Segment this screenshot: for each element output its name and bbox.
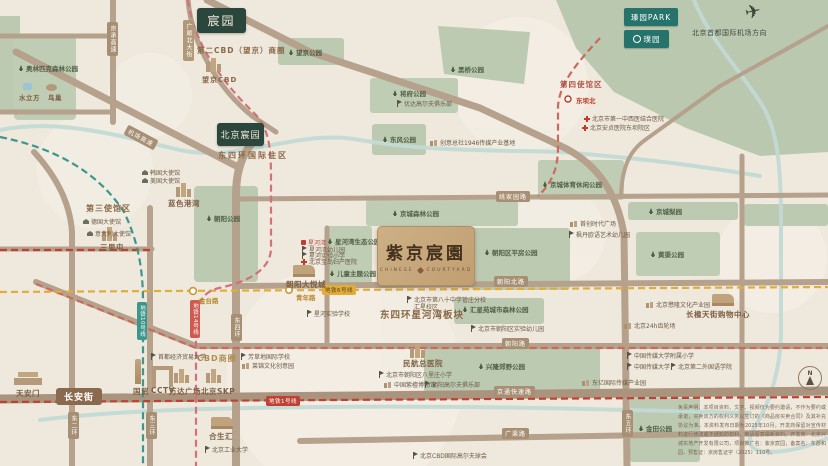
landmark-skp: 北京SKP <box>201 386 235 397</box>
school-flag-icon <box>306 310 312 317</box>
poi-xinghe-experimental-school: 星河实验学校 <box>306 309 350 318</box>
school-flag-icon <box>240 353 246 360</box>
poi-cueb-university: 首都经济贸易大学 <box>150 352 206 361</box>
school-flag-icon <box>670 363 676 370</box>
park-shape-jingcheng-forest <box>366 200 518 226</box>
road-label-changan-street: 长安街 <box>56 388 102 405</box>
hospital-cross-icon <box>584 116 590 122</box>
tree-icon <box>382 136 388 143</box>
poi-fangcaodi-school: 芳草地国际学校 <box>240 352 290 361</box>
project-logo-title: 紫京宸園 <box>386 239 466 264</box>
park-huangqu: 黄渠公园 <box>650 249 684 259</box>
station-marker-dongbabei <box>565 96 571 102</box>
park-heiqiao: 黑桥公园 <box>450 64 484 74</box>
area-title-second-cbd: 第二CBD（望京）商圈 <box>197 45 285 56</box>
school-flag-icon <box>150 353 156 360</box>
road-label-guangqu: 广渠路 <box>502 428 529 439</box>
school-flag-icon <box>568 231 574 238</box>
wangjing-cbd-buildings-icon <box>206 58 221 72</box>
poi-shouchuang-plaza: 首创时代广场 <box>570 219 616 228</box>
poi-maolong-industry-park: 北京懋隆文化产业园 <box>646 300 710 309</box>
compass-needle <box>806 376 814 385</box>
park-xinglong-country: 兴隆郊野公园 <box>478 361 525 371</box>
building-icon <box>582 380 590 386</box>
hopson-one-icon <box>211 417 233 429</box>
poi-24h-gear-factory: 北京24h齿轮场 <box>624 321 675 330</box>
metro-label-line-10: 地铁10号线 <box>137 302 147 340</box>
poi-laijin-creative-park: 莱锦文化创意园 <box>242 361 294 370</box>
compass-icon: N <box>798 366 822 390</box>
landmark-guomao: 国贸 <box>133 386 149 397</box>
golf-flag-icon <box>424 381 430 388</box>
poi-anzhen-hospital-dongba: 北京安贞医院东坝院区 <box>582 123 650 132</box>
area-title-project-area: 东四环国际住区 <box>218 150 288 161</box>
embassy-icon <box>83 219 89 224</box>
building-icon <box>646 302 654 308</box>
landmark-civil-aviation-hospital: 民航总医院 <box>403 358 443 369</box>
building-icon <box>242 363 250 369</box>
poi-cuc-primary: 中国传媒大学附属小学 <box>626 351 694 360</box>
area-title-wangjing-cbd: 望京CBD <box>202 75 237 85</box>
poi-chaoyang-kindergarten: 北京市朝阳区实验幼儿园 <box>470 324 544 333</box>
metro-label-line-14: 地铁14号线 <box>190 300 200 338</box>
park-jingcheng-sports: 京城体育休闲公园 <box>542 179 602 189</box>
landmark-water-cube: 水立方 <box>19 92 40 102</box>
puyuan-logo-icon <box>633 35 641 43</box>
road-label-east-3rd-ring: 东三环 <box>146 412 157 439</box>
tree-icon <box>329 270 335 277</box>
station-label-qingnianlu: 青年路 <box>296 292 316 302</box>
park-jingcheng-forest: 京城森林公园 <box>392 208 439 218</box>
park-shape-liyuan <box>628 202 738 220</box>
building-icon <box>430 140 438 146</box>
project-logo-subtitle: CHINESE COURTYARD <box>380 268 472 273</box>
landmark-birds-nest: 鸟巢 <box>48 92 62 102</box>
park-olympic-forest: 奥林匹克森林公园 <box>18 63 78 73</box>
road-label-east-2nd-ring: 东二环 <box>68 412 79 439</box>
park-dongfeng: 东风公园 <box>382 134 416 144</box>
skp-building-icon <box>206 369 221 383</box>
road-label-jingcheng-expwy: 京承高速 <box>107 22 118 56</box>
road-label-guangshun-st: 广顺北大街 <box>183 20 194 61</box>
road-label-chaoyang-north: 朝阳北路 <box>494 276 528 287</box>
school-flag-icon <box>626 352 632 359</box>
poi-baodao-hospital: 北京宝岛妇产医院 <box>301 257 357 266</box>
embassy-icon <box>142 170 148 175</box>
park-jingcheng-liyuan: 京城梨园 <box>648 206 682 216</box>
tree-icon <box>392 210 398 217</box>
embassy-icon <box>142 178 148 183</box>
tree-icon <box>650 251 656 258</box>
landmark-tiananmen: 天安门 <box>16 388 40 399</box>
metro-label-line-6: 地铁6号线 <box>322 285 356 295</box>
poi-italy-embassy: 意大利大使馆 <box>87 229 131 238</box>
wanda-plaza-icon <box>174 369 189 383</box>
zhenyuan-park-badge: 瑧园PARK <box>624 8 678 26</box>
park-chaoyang: 朝阳公园 <box>206 213 240 223</box>
poi-us-embassy: 美国大使馆 <box>142 176 180 185</box>
civil-aviation-hospital-icon <box>410 344 425 358</box>
station-marker-jintailu <box>190 288 197 295</box>
metro-label-line-1: 地铁1号线 <box>266 396 300 406</box>
golf-flag-icon <box>396 100 402 107</box>
logo-emblem-icon <box>417 267 424 274</box>
building-icon <box>384 382 392 388</box>
chenyuan-badge: 宸园 <box>197 8 246 33</box>
park-jiangfu: 将府公园 <box>392 88 426 98</box>
golf-flag-icon <box>412 452 418 459</box>
tree-icon <box>542 181 548 188</box>
guomao-tower-icon <box>135 359 141 384</box>
joy-city-icon <box>293 265 315 277</box>
landmark-wanda-plaza: 万达广场 <box>169 386 201 397</box>
landmark-hopson-one: 合生汇 <box>209 431 233 442</box>
poi-dongyi-media-park: 东亿国际传媒产业园 <box>582 378 646 387</box>
station-label-jintailu: 金台路 <box>199 295 219 305</box>
school-flag-icon <box>204 446 210 453</box>
park-shape-northeast-green <box>556 0 828 156</box>
tree-icon <box>288 49 294 56</box>
poi-first-integrated-hospital: 北京市第一中西医结合医院 <box>584 114 664 123</box>
poi-bisu-university: 北京第二外国语学院 <box>670 362 732 371</box>
tree-icon <box>450 66 456 73</box>
park-shape-heiqiao <box>438 26 530 84</box>
building-icon <box>570 221 578 227</box>
hospital-cross-icon <box>582 125 588 131</box>
park-pingfang: 朝阳区平房公园 <box>484 247 538 257</box>
station-label-dongbabei: 东坝北 <box>576 95 596 105</box>
poi-bjut-university: 北京工业大学 <box>204 445 248 454</box>
tiananmen-gate-icon <box>14 372 42 385</box>
road-label-chaoyang-rd: 朝阳路 <box>502 338 529 349</box>
tree-icon <box>478 363 484 370</box>
hospital-cross-icon <box>301 259 307 265</box>
poi-germany-embassy: 德国大使馆 <box>83 217 121 226</box>
location-map: 京承高速 广顺北大街 机场高速 姚家园路 朝阳北路 朝阳路 京通快速路 广渠路 … <box>0 0 828 466</box>
tree-icon <box>648 208 654 215</box>
school-flag-icon <box>406 296 412 303</box>
landmark-sanlitun: 三里屯 <box>100 242 124 253</box>
area-title-third-embassy: 第三使馆区 <box>86 203 131 214</box>
poi-media-industry-base: 创意总社1946传媒产业基地 <box>430 138 515 147</box>
landmark-solana: 蓝色港湾 <box>168 198 200 209</box>
tree-icon <box>484 249 490 256</box>
poi-cuc-university: 中国传媒大学 <box>626 362 670 371</box>
tree-icon <box>638 425 644 432</box>
beijing-chenyuan-badge: 北京宸园 <box>217 123 264 146</box>
road-yaojiayuan <box>236 195 828 199</box>
tree-icon <box>327 238 333 245</box>
building-icon <box>624 323 632 329</box>
project-logo-panel: 紫京宸園 CHINESE COURTYARD <box>377 226 475 286</box>
road-label-east-5th-ring: 东五环 <box>622 410 633 437</box>
poi-chaoyang-golf: 朝阳高尔夫俱乐部 <box>424 380 480 389</box>
puyuan-badge: 璞园 <box>624 30 669 48</box>
tree-icon <box>206 215 212 222</box>
landmark-joy-city: 朝阳大悦城 <box>286 279 326 290</box>
area-title-fourth-embassy: 第四使馆区 <box>560 79 603 90</box>
road-label-yaojiayuan: 姚家园路 <box>496 191 530 202</box>
park-jintian: 金田公园 <box>638 423 672 433</box>
road-label-jingtong-expwy: 京通快速路 <box>494 386 535 397</box>
paradise-walk-icon <box>712 294 734 306</box>
poi-huixing-campus: 汇星校区 <box>414 302 438 311</box>
poi-golf-club-north: 优达高尔夫俱乐部 <box>396 99 452 108</box>
poi-balizhuang-primary: 北京市朝阳区八里庄小学 <box>378 370 452 379</box>
road-label-east-4th-ring: 东四环 <box>231 314 242 341</box>
school-flag-icon <box>378 371 384 378</box>
poi-cbd-golf-club: 北京CBD国际高尔夫球会 <box>412 451 487 460</box>
tree-icon <box>18 65 24 72</box>
airport-direction-label: 北京首都国际机场方向 <box>692 28 767 38</box>
tree-icon <box>392 90 398 97</box>
embassy-icon <box>87 231 93 236</box>
landmark-paradise-walk: 长楹天街购物中心 <box>686 309 750 320</box>
disclaimer-text: 免责声明：本项目资料、文字、视频仅为要约邀请，不作为要约或承诺，买卖双方的权利义… <box>678 404 826 458</box>
cctv-building-icon <box>152 366 173 387</box>
park-children-theme: 儿童主题公园 <box>329 268 376 278</box>
road-changan-jingtong <box>0 391 828 399</box>
park-huixingyuan-forest: 汇星苑城市森林公园 <box>462 304 529 314</box>
birds-nest-icon <box>46 84 57 91</box>
park-wangjing: 望京公园 <box>288 47 322 57</box>
poi-art-kindergarten: 枫丹欧语艺术幼儿园 <box>568 230 630 239</box>
school-flag-icon <box>626 363 632 370</box>
solana-buildings-icon <box>176 183 191 197</box>
water-cube-icon <box>23 83 32 90</box>
school-flag-icon <box>470 325 476 332</box>
